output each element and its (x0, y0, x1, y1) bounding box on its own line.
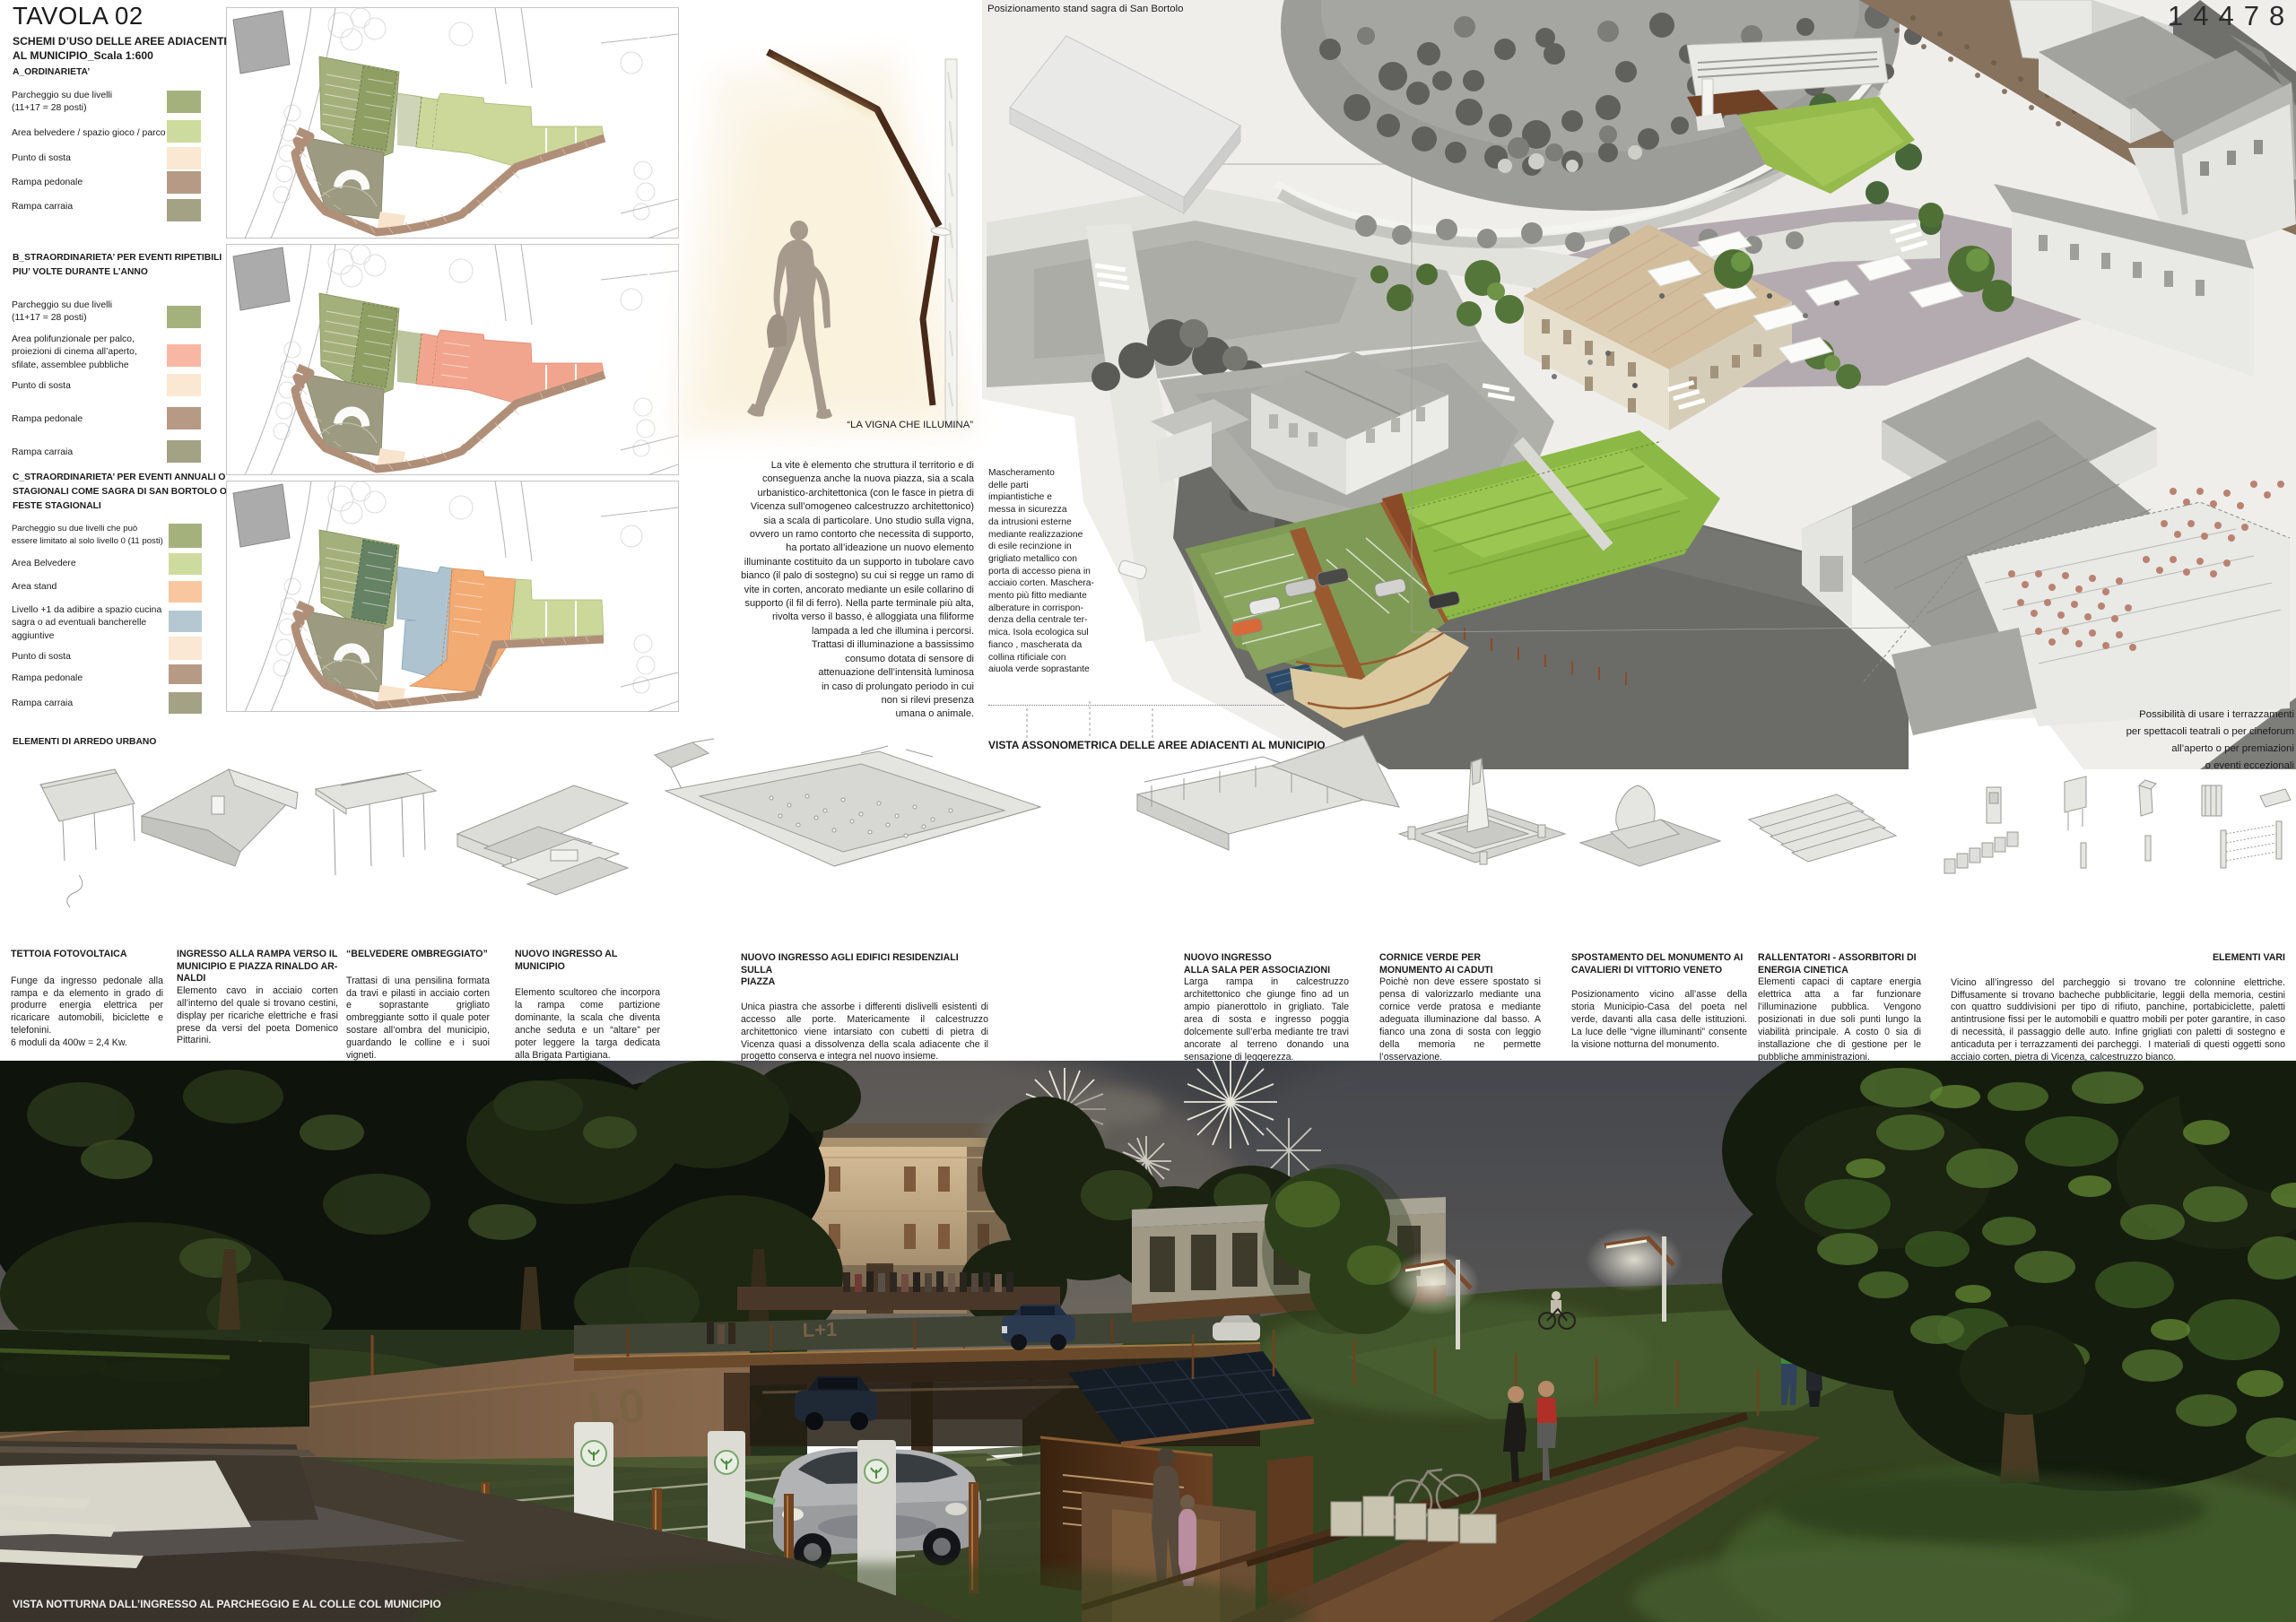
svg-text:L+1: L+1 (802, 1318, 837, 1341)
